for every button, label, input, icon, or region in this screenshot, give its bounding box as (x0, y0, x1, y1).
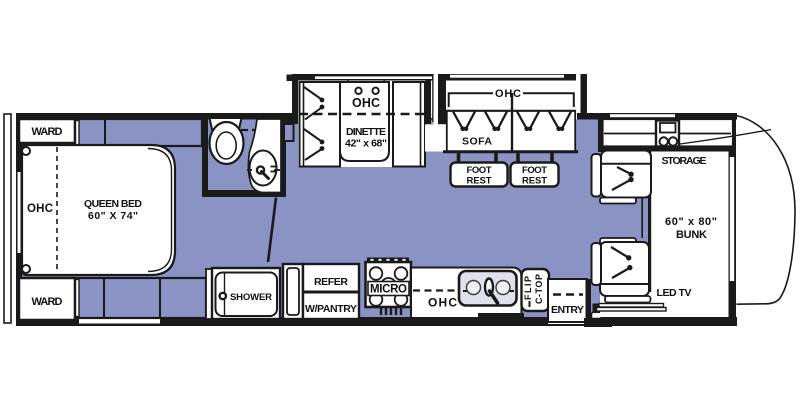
svg-text:SOFA: SOFA (462, 136, 492, 148)
svg-text:60" x 80": 60" x 80" (665, 216, 717, 228)
svg-text:SHOWER: SHOWER (230, 292, 272, 303)
svg-text:STORAGE: STORAGE (662, 155, 707, 167)
svg-text:MICRO: MICRO (370, 284, 407, 296)
svg-text:DINETTE: DINETTE (346, 126, 386, 138)
svg-text:REFER: REFER (314, 276, 348, 288)
svg-text:C-TOP: C-TOP (534, 274, 544, 304)
svg-text:WARD: WARD (32, 296, 63, 308)
svg-text:W/PANTRY: W/PANTRY (305, 303, 357, 315)
svg-text:WARD: WARD (32, 126, 63, 138)
svg-text:42" x 68": 42" x 68" (345, 138, 387, 150)
svg-text:OHC: OHC (352, 96, 380, 110)
svg-text:ENTRY: ENTRY (551, 304, 584, 316)
svg-text:FOOT: FOOT (467, 165, 492, 176)
svg-text:60" X 74": 60" X 74" (88, 210, 138, 222)
svg-text:LED TV: LED TV (657, 287, 692, 299)
svg-text:QUEEN BED: QUEEN BED (84, 198, 142, 210)
svg-text:REST: REST (522, 176, 547, 187)
svg-text:OHC: OHC (27, 203, 53, 215)
svg-text:FOOT: FOOT (522, 165, 547, 176)
svg-text:OHC: OHC (428, 296, 457, 310)
svg-text:FLIP: FLIP (523, 276, 533, 300)
svg-text:BUNK: BUNK (676, 229, 707, 241)
svg-text:OHC: OHC (495, 88, 521, 100)
svg-text:REST: REST (467, 176, 492, 187)
